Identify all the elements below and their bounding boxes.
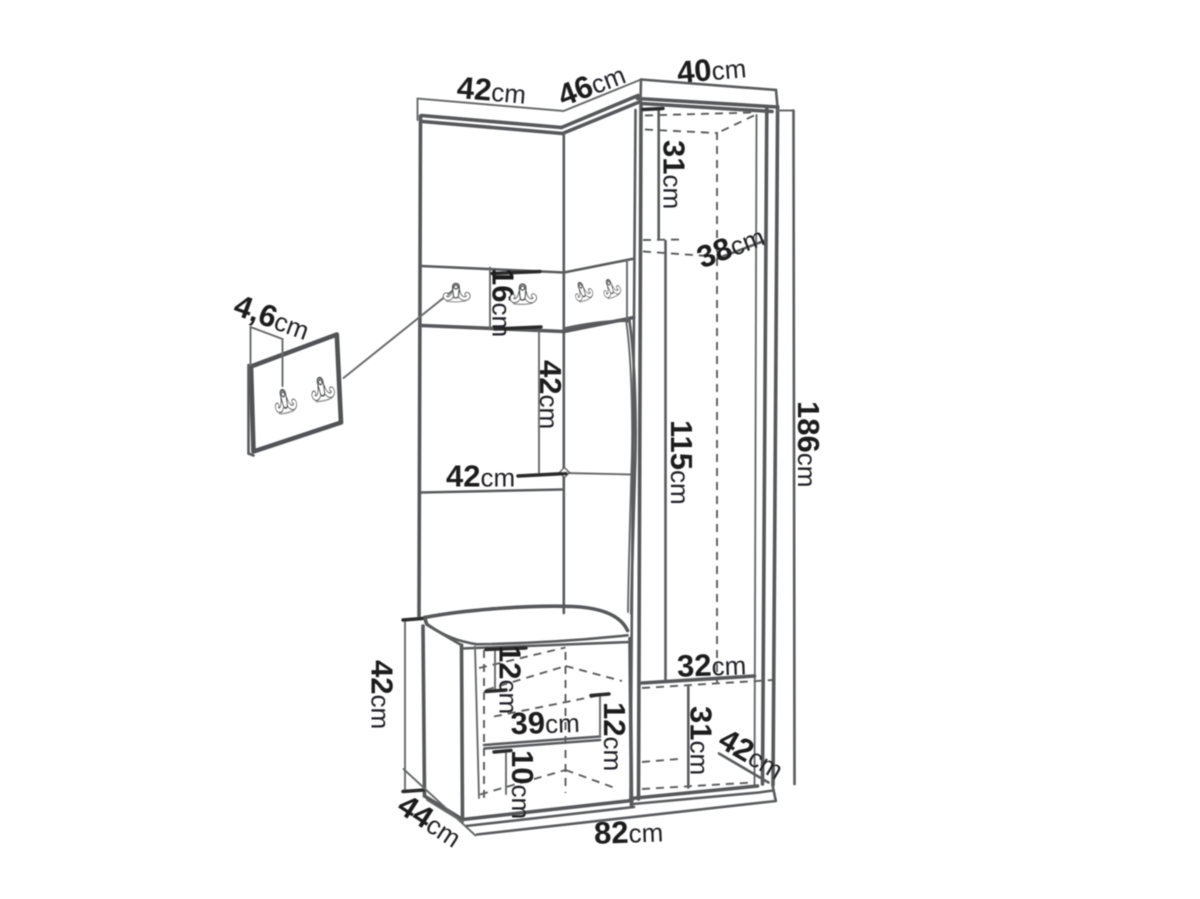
svg-text:12cm: 12cm (493, 645, 528, 714)
svg-text:31cm: 31cm (684, 706, 719, 775)
svg-text:31cm: 31cm (657, 140, 692, 209)
svg-text:82cm: 82cm (593, 813, 663, 850)
svg-text:40cm: 40cm (676, 49, 748, 90)
svg-text:42cm: 42cm (446, 459, 515, 494)
svg-text:39cm: 39cm (510, 704, 580, 741)
svg-text:12cm: 12cm (597, 702, 632, 771)
svg-text:10cm: 10cm (505, 750, 540, 819)
svg-text:186cm: 186cm (791, 401, 826, 487)
svg-text:115cm: 115cm (664, 420, 699, 505)
svg-text:42cm: 42cm (365, 660, 400, 729)
svg-text:32cm: 32cm (676, 646, 746, 683)
svg-text:42cm: 42cm (533, 360, 568, 429)
